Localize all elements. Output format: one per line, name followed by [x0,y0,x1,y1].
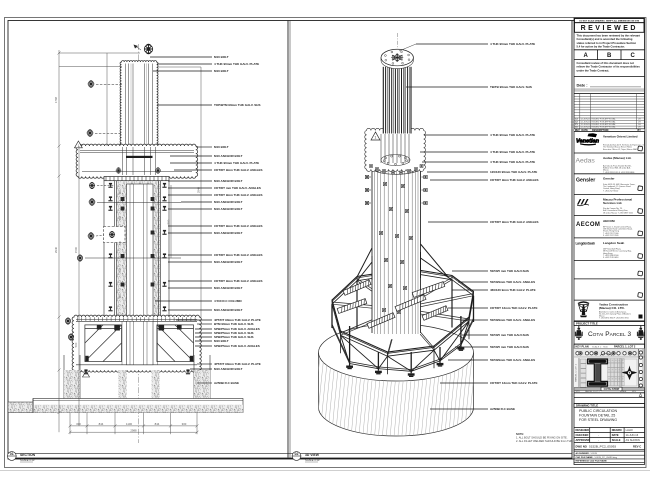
svg-text:SITE: SITE [576,391,581,393]
svg-text:LangdonSeah: LangdonSeah [576,242,596,246]
svg-text:CDT/DT 9mm THK GALV. ANGLES: CDT/DT 9mm THK GALV. ANGLES [490,220,539,224]
svg-text:M10 ANCHOR BOLT: M10 ANCHOR BOLT [214,367,243,371]
svg-text:A25NB R.C BASE: A25NB R.C BASE [214,381,239,385]
svg-text:460/120 9mm THK GALV. PLATE: 460/120 9mm THK GALV. PLATE [490,288,536,292]
svg-text:AECOM: AECOM [576,222,600,228]
svg-text:M10 ANCHOR BOLT: M10 ANCHOR BOLT [214,179,243,183]
svg-text:SCALE: SCALE [620,390,627,393]
svg-text:4 THK 90mm THK GALV. PLATE: 4 THK 90mm THK GALV. PLATE [214,161,259,165]
svg-text:PARCEL 1, LOT 2: PARCEL 1, LOT 2 [614,345,636,349]
svg-text:120/120 90mm THK GALV. PLATE: 120/120 90mm THK GALV. PLATE [490,170,537,174]
svg-text:SCALE 1 : 7500: SCALE 1 : 7500 [592,346,608,349]
svg-text:4 THK 90mm THK GALV. PLATE: 4 THK 90mm THK GALV. PLATE [214,62,259,66]
svg-text:CDT/DT 12mm THK GALV. PLATE: CDT/DT 12mm THK GALV. PLATE [490,381,537,385]
svg-text:1788: 1788 [54,96,58,103]
svg-text:DESIGNED: DESIGNED [576,428,590,432]
svg-text:Aedas: Aedas [576,157,596,164]
svg-text:T +853 2870 3900 F +853 2870: T +853 2870 3900 F +853 2870 3911 [599,318,629,320]
svg-text:14-JUN-16: 14-JUN-16 [626,433,639,437]
svg-text:50/50/9mm THK GALV. ANGLES: 50/50/9mm THK GALV. ANGLES [490,358,535,362]
svg-text:Aedas (Macau) Ltd.: Aedas (Macau) Ltd. [603,156,632,160]
svg-text:Langdon Seah: Langdon Seah [603,241,624,245]
svg-text:F +852 2576 0416: F +852 2576 0416 [603,257,618,259]
svg-text:SECTION: SECTION [20,453,36,457]
svg-text:2940: 2940 [197,186,201,193]
svg-text:4 THK 90mm THK GALV. PLATE: 4 THK 90mm THK GALV. PLATE [490,133,535,137]
svg-text:3D VIEW: 3D VIEW [305,453,320,457]
svg-text:5152B_PC2_05093: 5152B_PC2_05093 [589,445,616,449]
svg-text:AECOM: AECOM [603,219,615,223]
svg-text:CHECKED: CHECKED [576,433,589,437]
svg-text:AS SHOWN: AS SHOWN [626,438,640,442]
svg-text:500: 500 [119,240,122,245]
svg-text:REV C: REV C [633,445,641,449]
svg-text:50/50/9mm THK GALV. ANGLES: 50/50/9mm THK GALV. ANGLES [490,318,535,322]
svg-text:PROJECT TITLE: PROJECT TITLE [576,322,598,326]
svg-text:(Macau) CO. LTD.: (Macau) CO. LTD. [599,306,625,310]
svg-text:M10 BOLT: M10 BOLT [214,145,229,149]
svg-text:844: 844 [99,422,104,426]
svg-text:4 THK 90mm THK GALV. PLATE: 4 THK 90mm THK GALV. PLATE [490,42,535,46]
svg-text:CDT/DT 9mm THK GALV. ANGLES: CDT/DT 9mm THK GALV. ANGLES [490,178,539,182]
svg-text:PARCEL 1 LOT 2: PARCEL 1 LOT 2 [585,390,600,393]
svg-text:LHHO: LHHO [626,428,633,432]
svg-text:COTAI PARCEL 3: COTAI PARCEL 3 [588,331,632,338]
svg-text:300: 300 [182,422,187,426]
svg-text:M10 BOLT: M10 BOLT [214,69,229,73]
svg-text:300: 300 [76,422,81,426]
svg-text:4 THK 90mm THK GALV. PLATE: 4 THK 90mm THK GALV. PLATE [490,160,535,164]
svg-text:A25NB R.C BASE: A25NB R.C BASE [490,407,515,411]
svg-text:Services Ltd.: Services Ltd. [603,201,622,205]
svg-text:CDT/DT mm THK GALV. ANGLES: CDT/DT mm THK GALV. ANGLES [214,186,261,190]
svg-text:01: 01 [10,452,14,456]
svg-text:CDT/DT 12mm THK GALV. PLATE: CDT/DT 12mm THK GALV. PLATE [490,306,537,310]
svg-text:CAD FILE NAME : 5152B_PC_05093: CAD FILE NAME : 5152B_PC_05093.dwg [576,456,618,459]
svg-text:M10 BOLT: M10 BOLT [214,55,229,59]
svg-text:5.4 for action by the Trade Co: 5.4 for action by the Trade Contractor. [577,45,626,49]
svg-text:A: A [584,53,589,59]
svg-text:M10 ANCHOR BOLT: M10 ANCHOR BOLT [214,207,243,211]
svg-text:ISSUED FOR APPROVAL: ISSUED FOR APPROVAL [592,123,617,126]
svg-text:B: B [607,53,612,59]
svg-text:50/50/9mm THK GALV. ANGLES: 50/50/9mm THK GALV. ANGLES [490,280,535,284]
svg-text:SPB/P5mm THK GALV. ANGLES: SPB/P5mm THK GALV. ANGLES [214,344,260,348]
svg-text:under the Trade Contract.: under the Trade Contract. [577,68,610,72]
svg-text:CDT/DT 9mm THK GALV. ANGLES: CDT/DT 9mm THK GALV. ANGLES [214,193,263,197]
svg-text:T +853 2833 1055 F +853 2833: T +853 2833 1055 F +853 2833 0866 [603,172,634,174]
svg-text:500: 500 [167,219,171,224]
svg-text:M10 BOLT: M10 BOLT [214,339,229,343]
svg-text:APPROVED: APPROVED [576,438,591,442]
svg-text:PUBLIC CIRCULATION: PUBLIC CIRCULATION [579,409,617,413]
svg-text:1: 1 [375,136,377,140]
svg-text:M10 ANCHOR BOLT: M10 ANCHOR BOLT [214,231,243,235]
svg-text:F +852 2317 7609: F +852 2317 7609 [603,235,618,237]
svg-text:Date :: Date : [577,82,588,87]
svg-text:KEY PLAN: KEY PLAN [576,345,589,349]
svg-text:FOR STEEL DRAWING: FOR STEEL DRAWING [579,418,617,422]
svg-text:Gensler: Gensler [603,176,615,180]
svg-text:12-JUN-16: 12-JUN-16 [581,124,592,126]
svg-text:Consultant review of this docu: Consultant review of this document does … [577,61,635,65]
svg-text:1. ALL BOLT SHOULD BE FIXING O: 1. ALL BOLT SHOULD BE FIXING ON SITE. [516,435,568,439]
svg-text:500: 500 [119,189,122,194]
svg-text:TB/TB 90mm THK GALV. SHS: TB/TB 90mm THK GALV. SHS [490,85,532,89]
svg-text:4 THK 90mm THK GALV. PLATE: 4 THK 90mm THK GALV. PLATE [490,150,535,154]
svg-text:500: 500 [119,267,122,272]
svg-text:4 500 R.C COLUMN: 4 500 R.C COLUMN [214,299,242,303]
svg-text:50/50/5 mm THK GALV.SHS: 50/50/5 mm THK GALV.SHS [490,333,529,337]
svg-text:DO NOT SCALE DRAWING. VERIFY A: DO NOT SCALE DRAWING. VERIFY ALL DIMENSI… [579,20,639,23]
svg-text:DATE: DATE [612,433,619,437]
svg-text:Consultant(s) and is accorded: Consultant(s) and is accorded the follow… [577,37,633,41]
svg-text:REVIEWED: REVIEWED [581,25,638,32]
svg-text:12-JUN-16: 12-JUN-16 [581,121,592,123]
svg-text:Venetian: Venetian [576,138,600,144]
svg-text:T +852 2527 6110: T +852 2527 6110 [603,190,618,192]
svg-text:NOTE:: NOTE: [516,432,524,436]
svg-text:500: 500 [119,215,122,220]
svg-text:C: C [631,53,636,59]
svg-text:status referred to in Project: status referred to in Project Procedure … [577,41,637,45]
svg-text:DRAWING TITLE: DRAWING TITLE [576,404,598,408]
svg-text:SCALE: SCALE [612,438,621,442]
svg-text:DWG NO: DWG NO [576,445,587,449]
svg-text:2940: 2940 [54,246,58,253]
svg-text:-: - [598,434,599,437]
svg-text:12-JUN-16: 12-JUN-16 [581,119,592,121]
svg-text:-: - [598,439,599,442]
svg-text:50/50/5 mm THK GALV.SHS: 50/50/5 mm THK GALV.SHS [490,269,529,273]
svg-text:M10 ANCHOR BOLT: M10 ANCHOR BOLT [214,200,243,204]
svg-text:CDT/DT 9mm THK GALV. ANGLES: CDT/DT 9mm THK GALV. ANGLES [214,168,263,172]
svg-text:relieve the Trade Contractor o: relieve the Trade Contractor of its resp… [577,65,641,69]
svg-text:SCALE 1:10: SCALE 1:10 [20,458,35,462]
svg-text:M10 ANCHOR BOLT: M10 ANCHOR BOLT [214,154,243,158]
svg-text:M10 ANCHOR BOLT: M10 ANCHOR BOLT [214,260,243,264]
svg-text:02: 02 [295,452,299,456]
svg-text:2. ALL FILLET WELDED SHOULD BE: 2. ALL FILLET WELDED SHOULD BE 3mm THK. [516,439,573,443]
svg-text:4PT/DT 90mm THK GALV. PLATE: 4PT/DT 90mm THK GALV. PLATE [214,362,261,366]
svg-text:BTM 90mm THK GALV. SHS: BTM 90mm THK GALV. SHS [214,322,254,326]
svg-text:ISSUED FOR APPROVAL: ISSUED FOR APPROVAL [592,118,617,121]
svg-text:DRAWN: DRAWN [612,428,622,432]
svg-text:500: 500 [119,293,122,298]
svg-text:PARCEL 1, LOT 1: PARCEL 1, LOT 1 [575,363,578,381]
svg-text:SCALE 1:10: SCALE 1:10 [305,458,320,462]
svg-text:AS NUMBER : 5152B: AS NUMBER : 5152B [576,452,598,455]
svg-text:FOUNTAIN DETAIL 25: FOUNTAIN DETAIL 25 [579,414,615,418]
svg-text:844: 844 [155,422,160,426]
svg-text:50/50/5 mm THK GALV.SHS: 50/50/5 mm THK GALV.SHS [490,345,529,349]
svg-text:CDT/DT 9mm THK GALV. ANGLES: CDT/DT 9mm THK GALV. ANGLES [214,224,263,228]
svg-text:1500: 1500 [74,246,78,253]
svg-text:M10 ANCHOR BOLT: M10 ANCHOR BOLT [214,286,243,290]
svg-text:CDT/DT 9mm THK GALV. ANGLES: CDT/DT 9mm THK GALV. ANGLES [214,279,263,283]
svg-text:CDT/DT 9mm THK GALV. ANGLES: CDT/DT 9mm THK GALV. ANGLES [214,253,263,257]
svg-text:Venetian Orient Limited: Venetian Orient Limited [603,135,638,139]
svg-text:TOP/BTM 90mm THK GALV. SHS: TOP/BTM 90mm THK GALV. SHS [214,103,260,107]
svg-text:1100: 1100 [126,422,132,426]
svg-text:18 andar, Macau T +853 2837: 18 andar, Macau T +853 2837 5621 [603,211,633,214]
svg-text:This document has been reviewe: This document has been reviewed by the r… [577,34,641,38]
svg-text:COTAI STRIP: COTAI STRIP [604,388,620,391]
svg-text:500: 500 [74,342,78,347]
svg-text:2988: 2988 [130,428,137,432]
svg-text:ISSUED FOR APPROVAL: ISSUED FOR APPROVAL [592,120,617,123]
svg-text:Gensler: Gensler [576,178,595,184]
svg-text:REFERENCE CAD FILE NAME: REFERENCE CAD FILE NAME [576,460,608,463]
svg-text:M10 ANCHOR BOLT: M10 ANCHOR BOLT [214,308,243,312]
svg-text:Executive Offices L2, Taipa, M: Executive Offices L2, Taipa, Macau SAR [603,148,638,151]
